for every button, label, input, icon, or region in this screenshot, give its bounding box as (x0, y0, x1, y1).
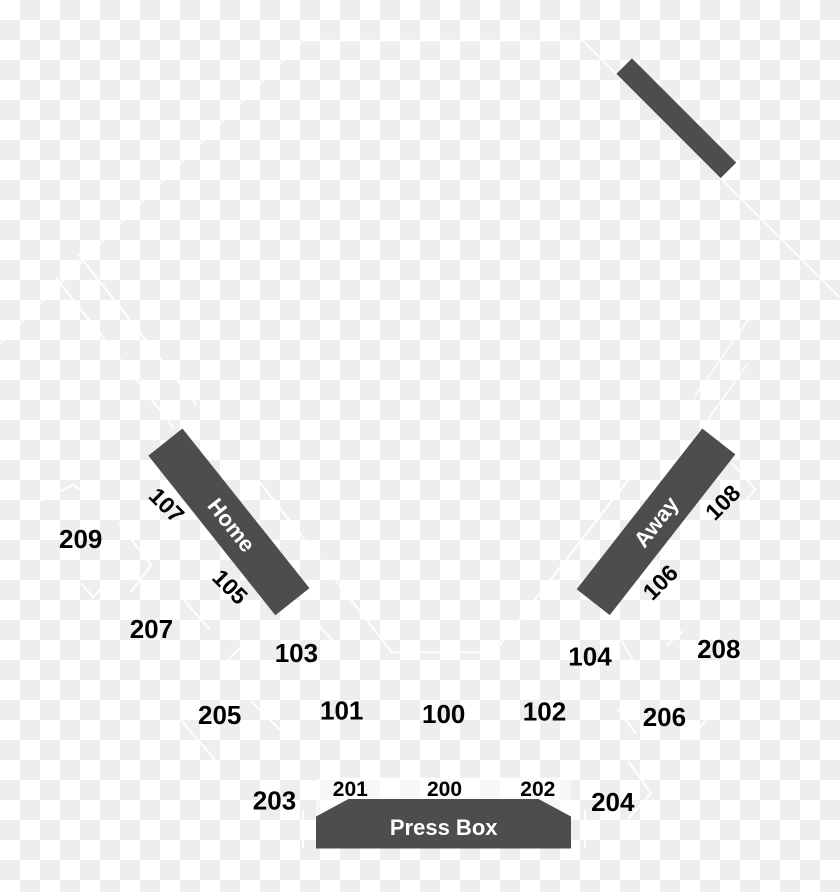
svg-text:Press Box: Press Box (390, 815, 498, 840)
svg-text:200: 200 (427, 778, 462, 801)
svg-text:207: 207 (130, 614, 173, 644)
svg-text:202: 202 (520, 778, 555, 801)
svg-text:201: 201 (333, 778, 368, 801)
svg-text:203: 203 (253, 786, 296, 816)
svg-text:205: 205 (198, 700, 241, 730)
svg-text:206: 206 (643, 702, 686, 732)
svg-text:209: 209 (59, 524, 102, 554)
svg-text:204: 204 (591, 787, 635, 817)
svg-text:103: 103 (275, 638, 318, 668)
svg-text:100: 100 (422, 699, 465, 729)
svg-text:102: 102 (523, 696, 566, 726)
svg-text:104: 104 (568, 642, 612, 672)
svg-text:101: 101 (320, 695, 363, 725)
svg-text:208: 208 (697, 634, 740, 664)
